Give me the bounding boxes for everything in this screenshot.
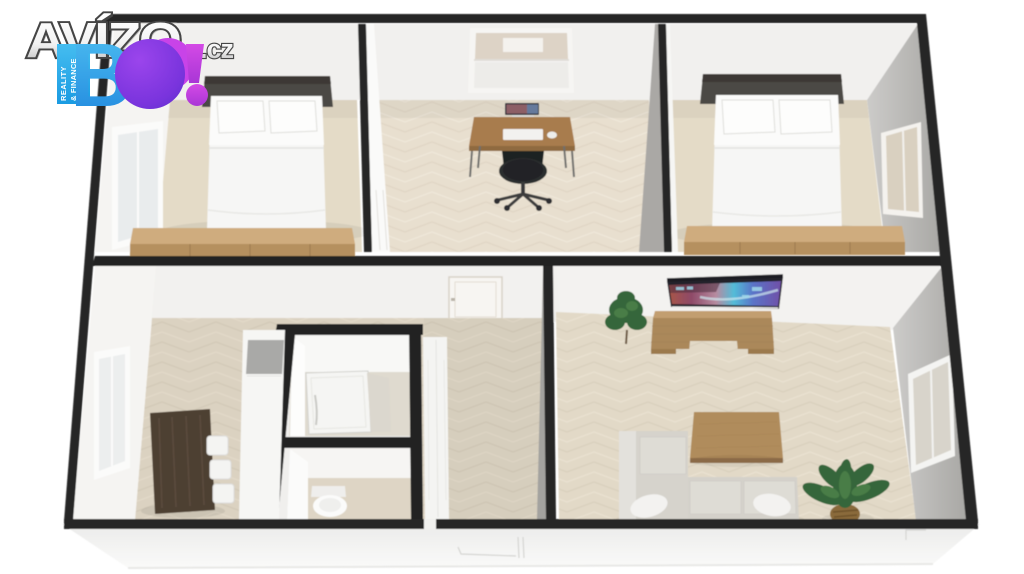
svg-text:REALITY: REALITY: [59, 66, 68, 101]
svg-text:.cz: .cz: [200, 34, 234, 64]
